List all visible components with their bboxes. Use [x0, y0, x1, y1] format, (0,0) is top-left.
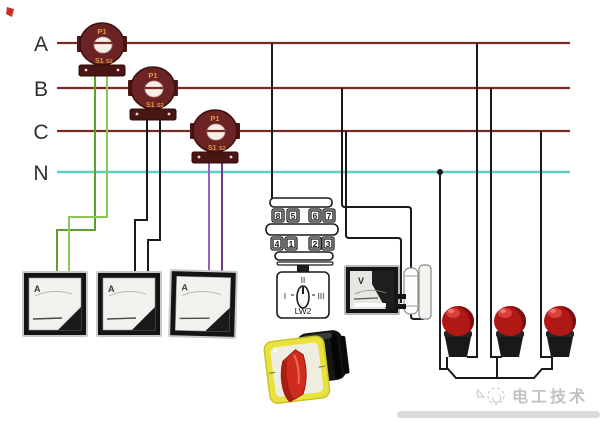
ct-a-s2-label: S2	[106, 59, 113, 65]
fuse-cylinder	[404, 268, 418, 314]
terminal-4-label: 4	[275, 239, 280, 249]
switch-shaft-coupling	[297, 265, 309, 272]
ct-c-primary-label: P1	[210, 114, 219, 123]
lamp-3-highlight	[548, 308, 562, 318]
phase-c-label: C	[33, 121, 48, 144]
ct-b-base-screw	[136, 113, 139, 116]
terminal-3-label: 3	[326, 239, 331, 249]
terminal-7-label: 7	[327, 211, 332, 221]
indicator-lamps	[442, 306, 576, 357]
ammeter-3: A	[168, 269, 238, 339]
terminal-2-label: 2	[313, 239, 318, 249]
ct-c-base-screw	[230, 156, 233, 159]
bottom-divider	[397, 411, 600, 418]
terminal-block-bottom-bar	[275, 252, 333, 260]
terminal-8-label: 8	[276, 211, 281, 221]
voltmeter-label: V	[358, 276, 364, 286]
cam-switch-dash-left	[269, 372, 275, 373]
neutral-junction-dot	[437, 169, 443, 175]
ammeter-1-needle	[33, 318, 62, 319]
phase-b-label: B	[34, 78, 48, 101]
ct-b-s1-label: S1	[146, 102, 155, 109]
ct-c-s1-label: S1	[208, 145, 217, 152]
terminal-6-label: 6	[313, 211, 318, 221]
fuse-tab-lower	[398, 304, 406, 309]
cam-switch-dash-right	[319, 366, 325, 367]
ct-a-base-screw	[85, 69, 88, 72]
selector-position-right: III	[318, 292, 325, 301]
ct-phase-c: P1 S1 S2	[190, 110, 240, 163]
ammeter-2-needle	[107, 318, 136, 319]
lamp-2-base	[497, 337, 523, 357]
ammeters: A A A	[22, 269, 238, 339]
lamp-1-base	[445, 337, 471, 357]
ct-phase-a: P1 S1 S2	[77, 23, 127, 76]
ct-a-primary-label: P1	[97, 27, 106, 36]
selector-model-label: LW2	[295, 306, 312, 316]
selector-position-top: II	[301, 276, 305, 285]
terminal-block-top-bar	[270, 198, 332, 207]
ct-a-hole	[94, 37, 112, 53]
voltmeter-slot	[354, 303, 386, 307]
selector-position-left: I	[284, 292, 286, 301]
ct-b-primary-label: P1	[148, 71, 157, 80]
lamp-2-highlight	[498, 308, 512, 318]
lamp-1-glare	[448, 309, 454, 313]
terminal-block-thin-bar	[277, 262, 333, 265]
lamp-1-highlight	[446, 308, 460, 318]
lamp-2-glare	[500, 309, 506, 313]
ct-a-base-screw	[117, 69, 120, 72]
ammeter-3-label: A	[181, 282, 188, 292]
fuse-plate	[419, 265, 431, 319]
ammeter-2: A	[96, 271, 162, 337]
watermark-text: 电工技术	[512, 387, 588, 406]
terminal-1-label: 1	[289, 239, 294, 249]
fuse-tab-upper	[398, 294, 406, 299]
ct-b-s2-label: S2	[157, 103, 164, 109]
ct-b-base-screw	[168, 113, 171, 116]
ammeter-3-needle	[180, 317, 210, 319]
lamp-3-base	[547, 337, 573, 357]
ammeter-2-label: A	[108, 284, 115, 294]
ct-c-base-screw	[198, 156, 201, 159]
selector-switch-symbol: II I III LW2	[277, 272, 329, 318]
ammeter-1-label: A	[34, 284, 41, 294]
neutral-label: N	[33, 162, 48, 185]
ct-c-s2-label: S2	[219, 146, 226, 152]
phase-a-label: A	[34, 33, 48, 56]
lamp-3-glare	[550, 309, 556, 313]
ct-a-s1-label: S1	[95, 58, 104, 65]
terminal-block-middle-bar	[266, 224, 338, 235]
ammeter-1: A	[22, 271, 88, 337]
voltmeter: V	[344, 265, 400, 315]
wiring-diagram: A B C N	[0, 0, 600, 424]
terminal-5-label: 5	[291, 211, 296, 221]
ct-phase-b: P1 S1 S2	[128, 67, 178, 120]
